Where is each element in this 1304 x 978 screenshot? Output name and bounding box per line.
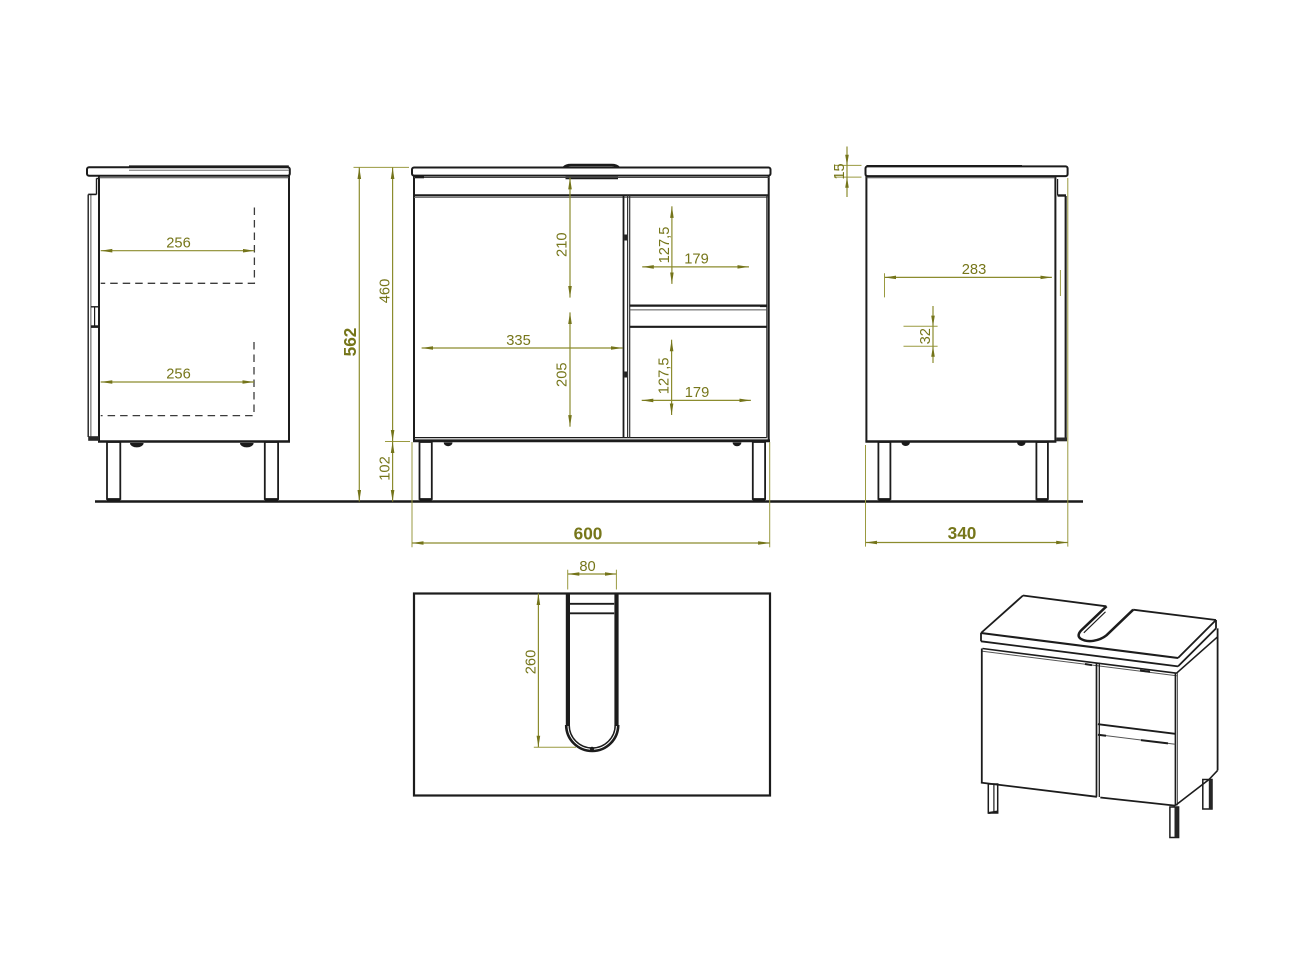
svg-text:15: 15: [832, 163, 848, 179]
svg-text:340: 340: [948, 523, 977, 543]
svg-text:32: 32: [918, 328, 934, 344]
svg-text:127,5: 127,5: [657, 227, 673, 264]
svg-text:256: 256: [166, 367, 191, 383]
svg-text:210: 210: [555, 232, 571, 257]
svg-text:205: 205: [555, 362, 571, 387]
svg-text:600: 600: [574, 524, 603, 544]
svg-text:335: 335: [506, 333, 531, 349]
svg-text:256: 256: [166, 235, 191, 251]
svg-text:102: 102: [378, 456, 394, 481]
svg-text:179: 179: [685, 385, 710, 401]
svg-text:283: 283: [962, 262, 987, 278]
svg-text:460: 460: [378, 279, 394, 304]
svg-text:260: 260: [523, 650, 539, 675]
svg-text:80: 80: [579, 559, 595, 575]
svg-text:562: 562: [340, 328, 360, 357]
svg-text:179: 179: [684, 252, 709, 268]
svg-text:127,5: 127,5: [657, 357, 673, 394]
